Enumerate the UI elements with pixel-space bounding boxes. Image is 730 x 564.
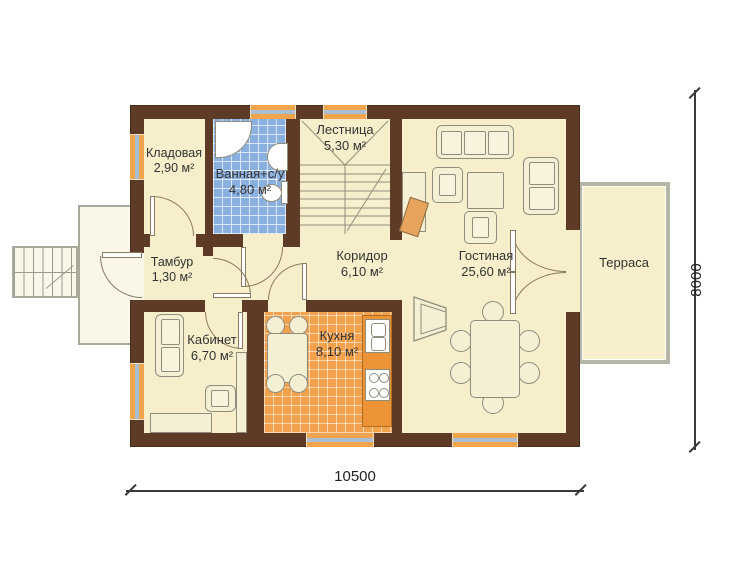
window-kitchen-icon [306,433,374,447]
room-label-stairs: Лестница 5,30 м² [305,122,385,154]
room-label-bathroom: Ванная+с/у 4,80 м² [210,166,290,198]
dining-chair [450,330,472,352]
bathroom-door-gap [243,234,283,247]
dimension-width-label: 10500 [300,468,410,485]
entrance-door-leaf [102,252,142,258]
room-label-living: Гостиная 25,60 м² [446,248,526,280]
wall-stairs-living [390,119,402,240]
wall-kitchen-living [392,312,402,433]
living-armchair-bottom [464,211,497,244]
living-armchair-left [432,167,463,203]
window-stairs-icon [323,105,367,119]
vestibule-door-leaf [213,293,251,298]
coffee-table [467,172,504,209]
room-label-kitchen: Кухня 8,10 м² [297,328,377,360]
floor-plan: Кладовая 2,90 м² Ванная+с/у 4,80 м² Лест… [0,0,730,564]
kitchen-door-gap [268,300,306,312]
dining-chair [518,330,540,352]
office-door-gap [205,300,242,312]
living-sofa-2seat [523,157,559,215]
room-label-office: Кабинет 6,70 м² [172,332,252,364]
dining-table [470,320,520,398]
window-bathroom-icon [250,105,296,119]
window-office-icon [130,363,144,420]
room-label-corridor: Коридор 6,10 м² [322,248,402,280]
kitchen-chair [289,374,308,393]
terrace-door-gap [566,230,580,312]
room-label-vestibule: Тамбур 1,30 м² [138,255,206,286]
living-sofa-3seat [436,125,514,159]
dining-chair [518,362,540,384]
office-chair [205,385,236,412]
kitchen-chair [266,374,285,393]
room-label-terrace: Терраса [584,255,664,271]
terrace [578,182,670,364]
office-desk-bottom [150,413,212,433]
fireplace-icon [413,296,447,342]
dimension-line-width [126,490,584,492]
kitchen-door-leaf [302,263,307,300]
dining-chair [450,362,472,384]
entrance-steps [12,246,78,298]
room-label-storage: Кладовая 2,90 м² [139,146,209,177]
storage-door-leaf [150,196,155,236]
wall-office-kitchen [247,312,264,433]
window-living-icon [452,433,518,447]
dimension-height-label: 8000 [688,250,704,310]
stove-icon [365,369,390,401]
office-desk-right [236,352,247,433]
